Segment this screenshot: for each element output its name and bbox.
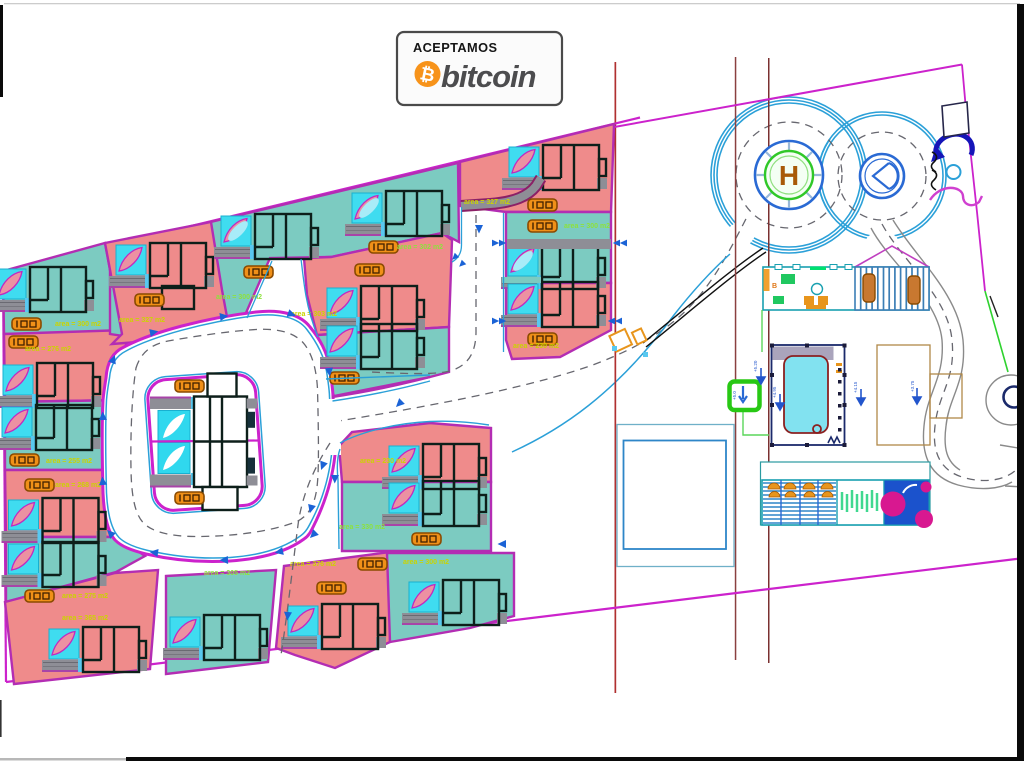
svg-text:area = 300 m2: area = 300 m2 bbox=[55, 321, 101, 328]
svg-text:bitcoin: bitcoin bbox=[441, 59, 536, 94]
svg-text:area = 276 m2: area = 276 m2 bbox=[25, 346, 71, 353]
svg-text:area = 300 m2: area = 300 m2 bbox=[564, 223, 610, 230]
svg-text:ACEPTAMOS: ACEPTAMOS bbox=[413, 40, 497, 55]
svg-text:H: H bbox=[779, 160, 799, 191]
svg-text:area = 303 m2: area = 303 m2 bbox=[291, 311, 337, 318]
svg-text:area = 305 m2: area = 305 m2 bbox=[204, 570, 250, 577]
svg-text:area = 275 m2: area = 275 m2 bbox=[62, 593, 108, 600]
svg-text:area = 330 m2: area = 330 m2 bbox=[339, 524, 385, 531]
svg-text:area = 268 m2: area = 268 m2 bbox=[55, 482, 101, 489]
svg-text:+3.75: +3.75 bbox=[910, 380, 915, 392]
svg-text:area = 327 m2: area = 327 m2 bbox=[464, 199, 510, 206]
svg-text:area = 302 m2: area = 302 m2 bbox=[397, 244, 443, 251]
svg-text:area = 376 m2: area = 376 m2 bbox=[290, 561, 336, 568]
svg-text:area = 300 m2: area = 300 m2 bbox=[403, 559, 449, 566]
svg-text:area = 365 m2: area = 365 m2 bbox=[62, 615, 108, 622]
svg-text:area = 230 m2: area = 230 m2 bbox=[513, 343, 559, 350]
svg-text:area = 327 m2: area = 327 m2 bbox=[119, 317, 165, 324]
svg-text:+5.20: +5.20 bbox=[753, 360, 758, 372]
svg-text:area = 255 m2: area = 255 m2 bbox=[46, 458, 92, 465]
svg-text:B: B bbox=[772, 283, 777, 290]
svg-text:+4.15: +4.15 bbox=[853, 381, 858, 393]
svg-text:+5.0: +5.0 bbox=[732, 391, 737, 400]
svg-text:area = 230 m2: area = 230 m2 bbox=[360, 458, 406, 465]
svg-text:+4.95: +4.95 bbox=[772, 386, 777, 398]
